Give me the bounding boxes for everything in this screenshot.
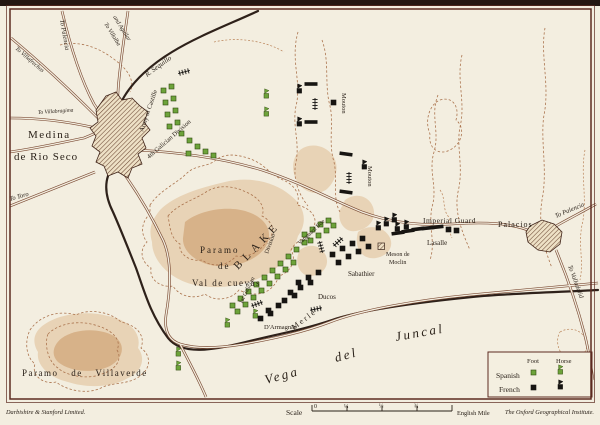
medina-de-rio-seco-battle-map: Medina de Rio Seco Palacios R. Sequillo … xyxy=(0,0,600,425)
scale-tick-quarter: ¼ xyxy=(344,404,349,410)
french-foot-unit xyxy=(258,316,263,321)
scale-tick-half: ½ xyxy=(379,403,384,410)
french-horse-unit xyxy=(392,213,397,222)
french-foot-unit xyxy=(292,293,297,298)
spanish-horse-unit xyxy=(264,107,269,116)
french-foot-unit xyxy=(360,236,365,241)
unit-label-mouton-south: Mouton xyxy=(366,166,373,187)
french-foot-unit xyxy=(340,246,345,251)
french-foot-unit xyxy=(268,311,273,316)
scale-tick-0: 0 xyxy=(314,404,317,410)
legend-spanish-horse-icon xyxy=(558,365,563,374)
institute-imprint: The Oxford Geographical Institute. xyxy=(505,409,594,416)
spanish-foot-unit xyxy=(326,218,331,223)
legend-french-foot-icon xyxy=(531,385,536,390)
legend-col-horse: Horse xyxy=(556,358,572,365)
map-page: Medina de Rio Seco Palacios R. Sequillo … xyxy=(0,0,600,425)
spanish-foot-unit xyxy=(259,288,264,293)
spanish-foot-unit xyxy=(294,247,299,252)
legend-box: Foot Horse Spanish French xyxy=(488,352,592,397)
unit-label-sabathier: Sabathier xyxy=(348,270,375,278)
french-foot-unit xyxy=(366,244,371,249)
french-foot-unit xyxy=(298,285,303,290)
spanish-foot-unit xyxy=(275,274,280,279)
spanish-foot-unit xyxy=(165,112,170,117)
spanish-horse-unit xyxy=(225,318,230,327)
spanish-foot-unit xyxy=(270,268,275,273)
spanish-foot-unit xyxy=(203,149,208,154)
publisher-imprint: Darbishire & Stanford Limited. xyxy=(5,409,85,416)
french-foot-unit xyxy=(346,254,351,259)
spanish-foot-unit xyxy=(262,275,267,280)
french-infantry-line xyxy=(305,120,318,124)
spanish-foot-unit xyxy=(163,100,168,105)
french-foot-unit xyxy=(350,241,355,246)
french-foot-unit xyxy=(316,270,321,275)
french-foot-unit xyxy=(446,227,451,232)
spanish-foot-unit xyxy=(195,144,200,149)
spanish-foot-unit xyxy=(171,96,176,101)
french-foot-unit xyxy=(454,228,459,233)
spanish-foot-unit xyxy=(251,295,256,300)
spanish-foot-unit xyxy=(175,120,180,125)
spanish-foot-unit xyxy=(211,153,216,158)
french-foot-unit xyxy=(331,100,336,105)
spanish-foot-unit xyxy=(187,138,192,143)
french-horse-unit xyxy=(395,222,400,231)
region-label-paramo-cuevas-2: de xyxy=(218,261,231,271)
spanish-foot-unit xyxy=(267,281,272,286)
spanish-foot-unit xyxy=(291,260,296,265)
spanish-foot-unit xyxy=(186,151,191,156)
french-foot-unit xyxy=(276,303,281,308)
spanish-foot-unit xyxy=(331,223,336,228)
spanish-horse-unit xyxy=(264,89,269,98)
spanish-foot-unit xyxy=(161,88,166,93)
french-foot-unit xyxy=(356,249,361,254)
legend-row-spanish: Spanish xyxy=(496,371,520,380)
scale-label: Scale xyxy=(286,408,303,417)
french-foot-unit xyxy=(306,275,311,280)
spanish-foot-unit xyxy=(316,233,321,238)
place-label-meson-line2: Moclin xyxy=(389,260,406,266)
french-foot-unit xyxy=(308,280,313,285)
spanish-horse-unit xyxy=(253,309,258,318)
region-label-paramo-cuevas-1: Paramo xyxy=(200,245,240,255)
spanish-foot-unit xyxy=(169,84,174,89)
legend-spanish-foot-icon xyxy=(531,370,536,375)
spanish-foot-unit xyxy=(167,124,172,129)
unit-label-mouton-north: Mouton xyxy=(340,93,347,114)
scale-unit-label: English Mile xyxy=(457,410,490,417)
unit-label-imperial-guard: Imperial Guard xyxy=(423,216,476,225)
spanish-foot-unit xyxy=(286,254,291,259)
french-horse-unit xyxy=(384,217,389,226)
french-horse-unit xyxy=(297,84,302,93)
unit-label-ducos: Ducos xyxy=(318,293,336,301)
french-horse-unit xyxy=(376,221,381,230)
spanish-horse-unit xyxy=(176,361,181,370)
spanish-foot-unit xyxy=(235,309,240,314)
spanish-foot-unit xyxy=(283,267,288,272)
french-foot-unit xyxy=(282,298,287,303)
french-infantry-line xyxy=(305,82,318,86)
town-label-palacios: Palacios xyxy=(498,220,533,229)
spanish-foot-unit xyxy=(324,228,329,233)
scale-tick-threequarter: ¾ xyxy=(414,403,419,410)
french-foot-unit xyxy=(336,260,341,265)
french-horse-unit xyxy=(297,117,302,126)
region-label-paramo-villaverde: Paramo de Villaverde xyxy=(22,368,148,378)
town-label-medina-line2: de Rio Seco xyxy=(14,151,78,163)
spanish-foot-unit xyxy=(278,261,283,266)
building-meson xyxy=(378,243,385,250)
french-foot-unit xyxy=(330,252,335,257)
spanish-foot-unit xyxy=(173,108,178,113)
page-top-edge xyxy=(0,0,600,6)
legend-row-french: French xyxy=(499,385,520,394)
legend-col-foot: Foot xyxy=(527,358,539,365)
unit-label-lasalle: Lasalle xyxy=(427,239,447,247)
spanish-horse-unit xyxy=(176,347,181,356)
town-label-medina-line1: Medina xyxy=(28,129,71,141)
french-foot-unit xyxy=(296,280,301,285)
french-horse-unit xyxy=(404,220,409,229)
place-label-meson-line1: Meson de xyxy=(386,252,410,258)
legend-french-horse-icon xyxy=(558,380,563,389)
spanish-foot-unit xyxy=(230,303,235,308)
